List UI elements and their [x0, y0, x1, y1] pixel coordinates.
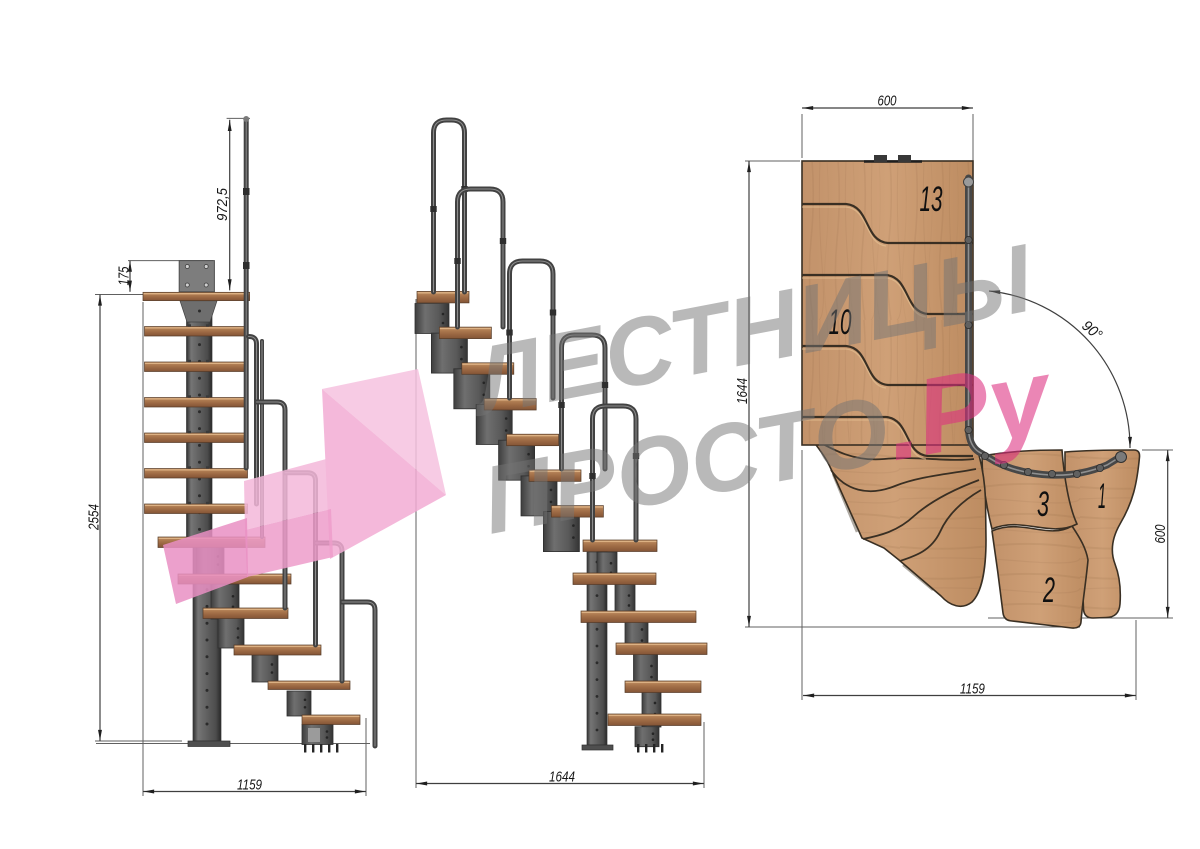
svg-text:2554: 2554	[86, 504, 103, 531]
svg-text:1644: 1644	[549, 769, 575, 786]
svg-text:175: 175	[116, 266, 133, 285]
svg-text:1159: 1159	[960, 681, 986, 698]
svg-text:1159: 1159	[237, 777, 263, 794]
svg-text:600: 600	[878, 93, 897, 110]
svg-text:13: 13	[920, 180, 943, 219]
svg-text:600: 600	[1152, 524, 1169, 543]
svg-text:972,5: 972,5	[214, 187, 231, 221]
svg-text:3: 3	[1037, 485, 1049, 524]
svg-text:2: 2	[1042, 571, 1055, 610]
svg-text:1: 1	[1098, 477, 1106, 516]
